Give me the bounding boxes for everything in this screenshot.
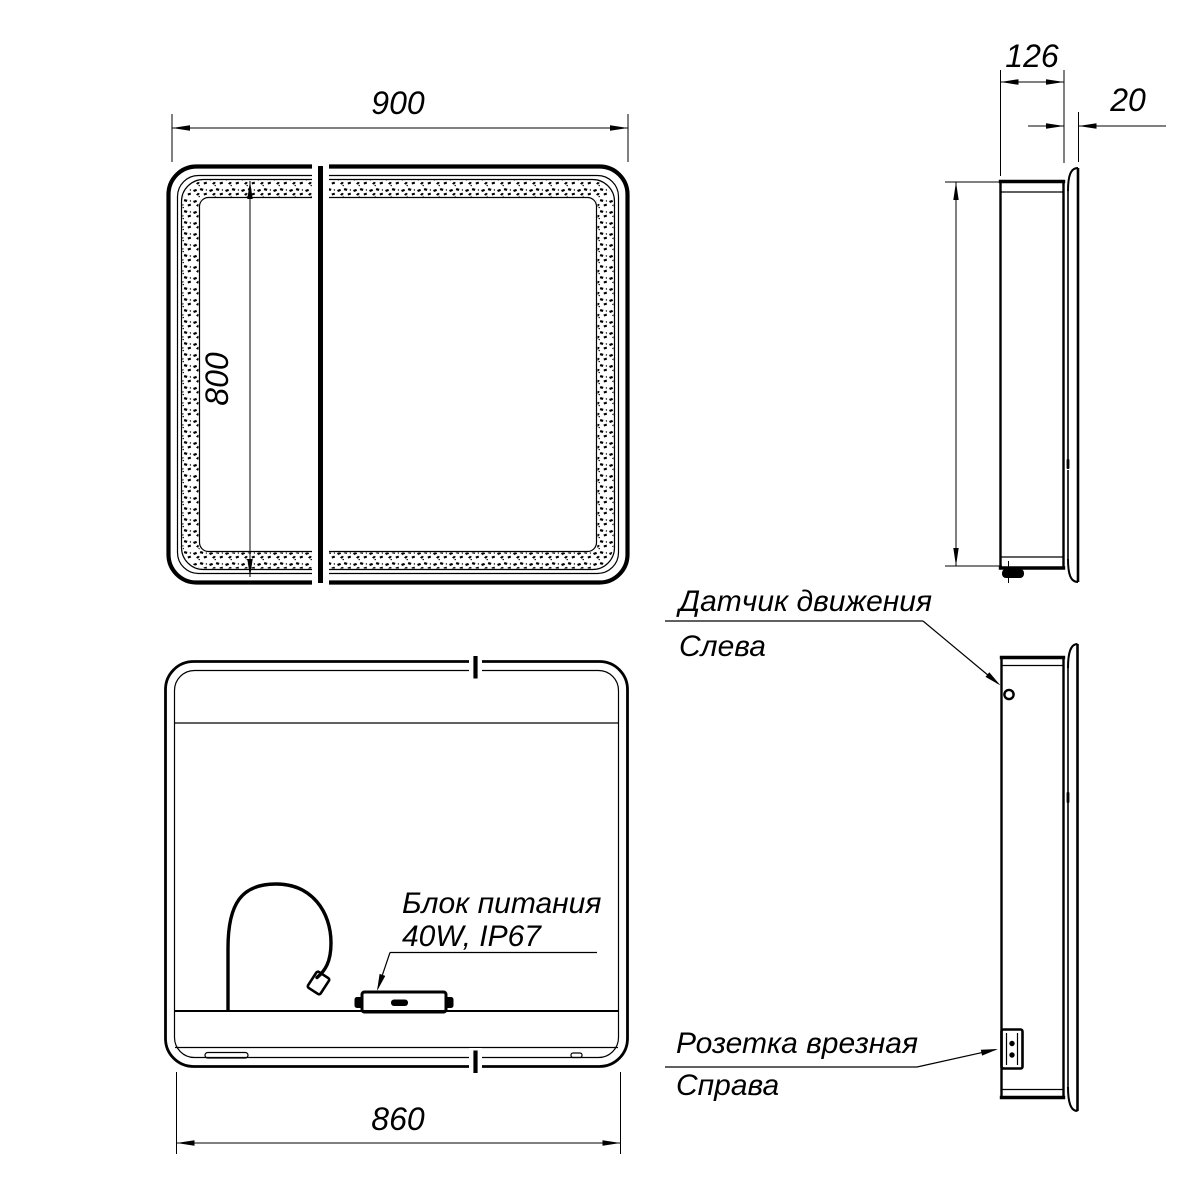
dim-depth-126: 126 [1001,38,1065,176]
socket-pin-top [1009,1041,1014,1046]
dim-height-unlabeled [945,182,1002,566]
mirror-top-curve [1068,168,1078,191]
sensor-label-line2: Слева [679,630,766,663]
arrowhead-right [1046,79,1064,85]
led-band-inner-boundary [200,198,597,552]
psu-callout: Блок питания 40W, IP67 [377,887,601,991]
dim-width-860: 860 [177,1072,621,1154]
psu-connector [391,1000,408,1007]
bottom-switch-tab [1002,569,1024,578]
motion-sensor-dot [1004,690,1013,699]
mirror-bottom-curve [1068,559,1078,582]
socket-callout: Розетка врезная Справа [665,1027,998,1102]
arrowhead-left [1079,123,1097,129]
mount-slot-right [571,1053,582,1058]
power-supply-box [355,992,454,1012]
led-band-stipple [191,189,606,561]
socket-label-line1: Розетка врезная [676,1027,918,1060]
technical-drawing: 900 800 126 [0,0,1200,1200]
dim-text-800: 800 [199,352,235,406]
back-view: Блок питания 40W, IP67 860 [166,655,628,1154]
arrowhead-down [953,548,958,566]
arrowhead-left [1001,79,1019,85]
dim-text-20: 20 [1109,82,1146,118]
mirror-clip-mark [1067,792,1070,803]
dim-text-900: 900 [371,85,425,121]
arrowhead-left [172,125,190,131]
arrowhead-right [610,125,628,131]
front-inner-offset-line [178,176,619,574]
mirror-bottom-curve [1068,1087,1078,1111]
socket-leader-arrowhead [981,1049,998,1056]
sensor-label-line1: Датчик движения [676,585,932,618]
drawing-canvas: 900 800 126 [0,0,1200,1200]
sensor-leader-arrowhead [986,672,1001,685]
arrowhead-up [953,182,958,200]
dim-height-800: 800 [199,181,253,577]
psu-label-line1: Блок питания [402,887,601,920]
psu-leader-arrowhead [377,974,385,991]
dim-width-900: 900 [172,85,628,162]
front-view: 900 800 [169,85,629,585]
socket-pin-bottom [1009,1052,1014,1057]
dim-mirror-20: 20 [1028,82,1166,162]
arrowhead-right [603,1140,621,1146]
back-inner-line [175,671,619,1058]
side-view-bottom: Датчик движения Слева Розетка врезная Сп… [665,585,1078,1111]
dim-text-860: 860 [371,1101,425,1137]
mirror-top-curve [1068,644,1078,668]
arrowhead-right [1046,123,1064,129]
motion-sensor-callout: Датчик движения Слева [665,585,1001,686]
dim-text-126: 126 [1005,38,1059,74]
socket-label-line2: Справа [676,1069,779,1102]
led-band-outer-boundary [182,180,615,570]
mirror-clip-mark [1067,459,1070,469]
socket-body [1002,1030,1023,1069]
recessed-socket [1002,1030,1023,1069]
arrowhead-left [177,1140,195,1146]
side-view-top: 126 20 [945,38,1166,583]
psu-label-line2: 40W, IP67 [402,920,542,953]
sensor-leader-line [923,621,998,684]
front-outer-frame [169,167,628,583]
